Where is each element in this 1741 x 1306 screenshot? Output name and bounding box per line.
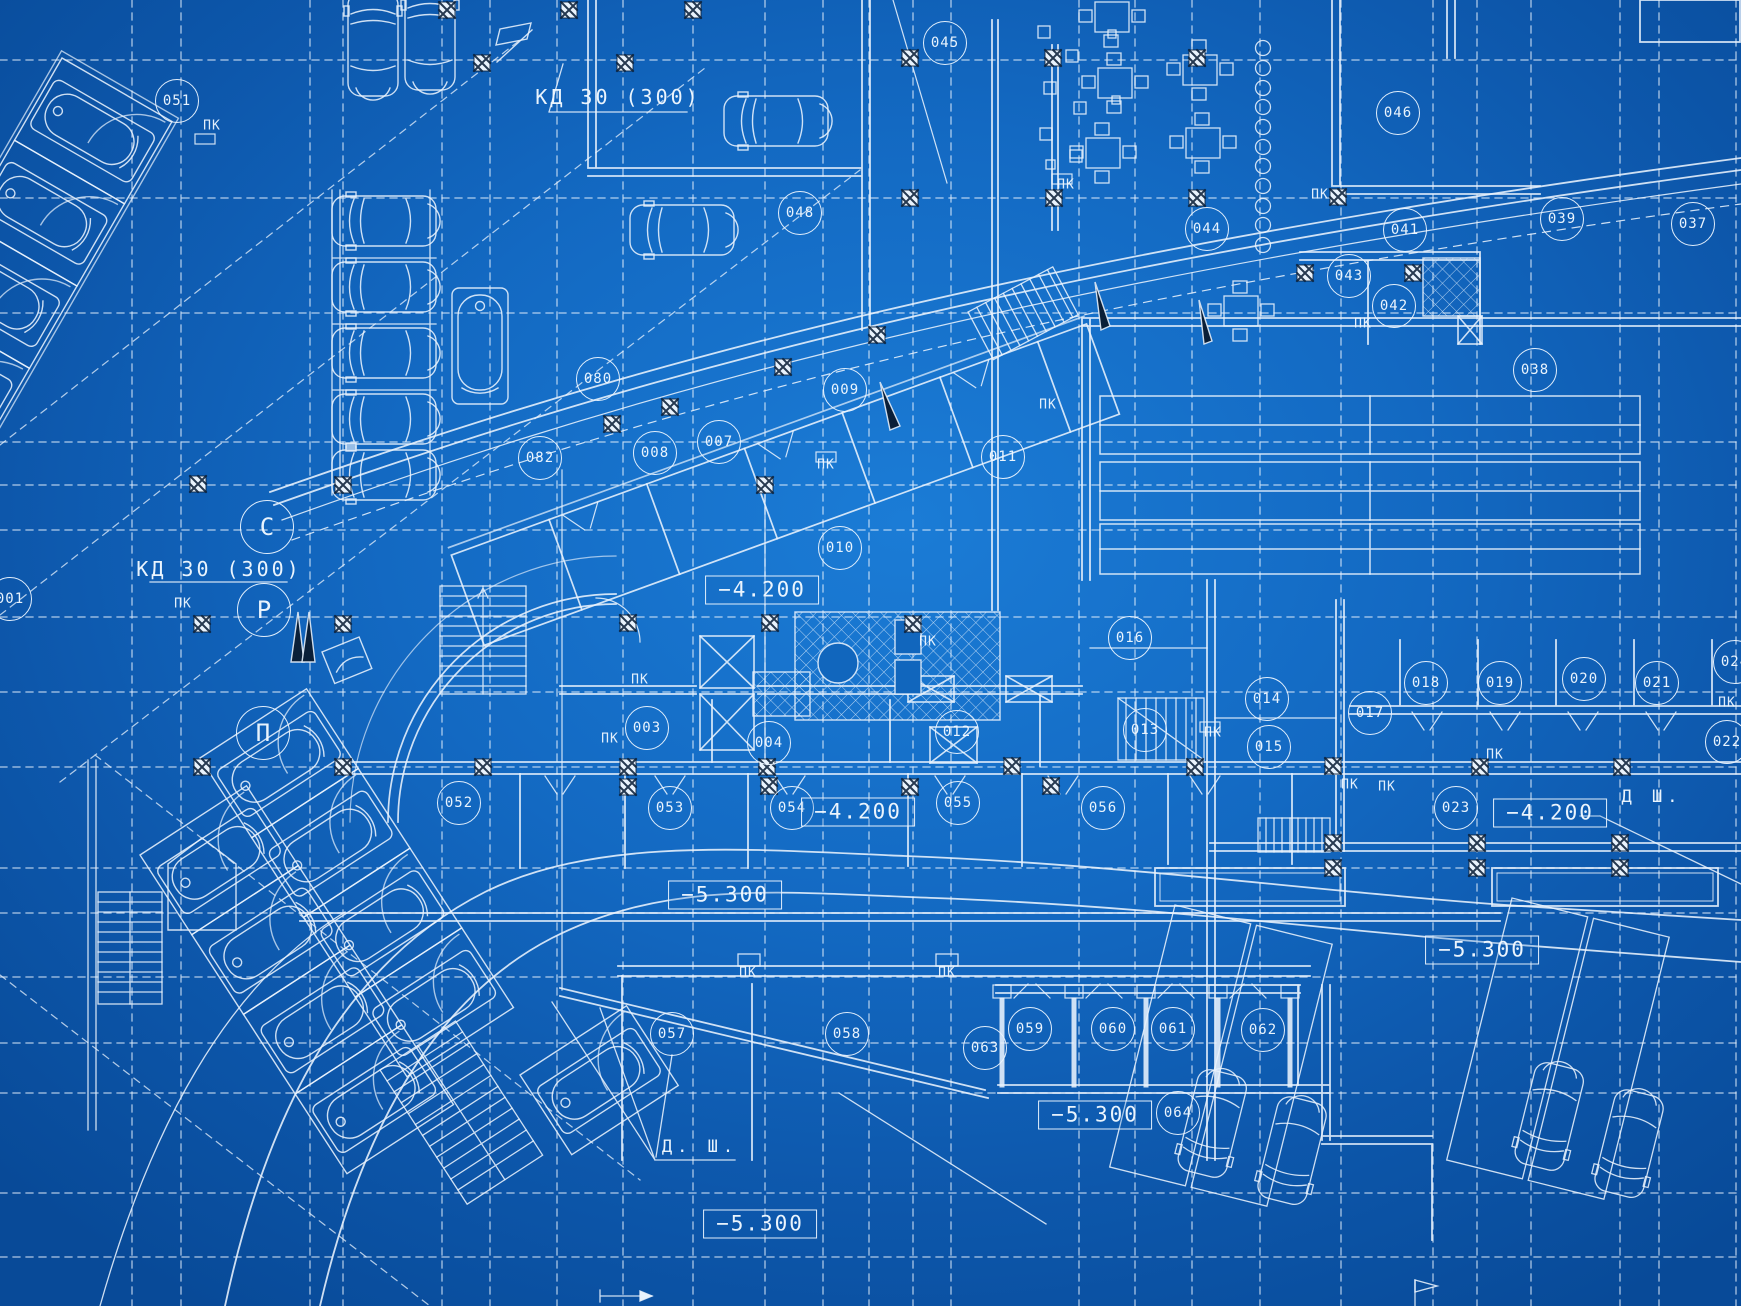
pk-marker-label: ПК	[1039, 398, 1057, 413]
room-number-bubble: 058	[825, 1012, 869, 1056]
room-number-bubble: 018	[1404, 661, 1448, 705]
stairs-far-left	[98, 892, 162, 1004]
room-number-bubble: 022	[1705, 720, 1741, 764]
room-number-bubble: 044	[1185, 207, 1229, 251]
elevation-level-mark: −5.300	[1425, 936, 1539, 965]
elevation-level-mark: −5.300	[703, 1210, 817, 1239]
column-markers	[190, 2, 1630, 876]
room-number-bubble: 052	[437, 781, 481, 825]
axis-letter-bubble: П	[236, 706, 290, 760]
parking-cars	[332, 0, 832, 504]
pk-marker-label: ПК	[174, 597, 192, 612]
room-number-bubble: 009	[823, 368, 867, 412]
blueprint-canvas: 0510450460480440410390370430420380800090…	[0, 0, 1741, 1306]
stairs-small-right	[1258, 818, 1330, 852]
parking-pad-left	[1155, 868, 1345, 906]
pk-marker-label: ПК	[631, 673, 649, 688]
pk-marker-label: ПК	[1204, 726, 1222, 741]
elevation-level-mark: −4.200	[801, 798, 915, 827]
room-number-bubble: 013	[1123, 708, 1167, 752]
room-number-bubble: 023	[1434, 786, 1478, 830]
parking-pad-right	[1492, 868, 1718, 906]
axis-letter-bubble: Р	[237, 583, 291, 637]
room-number-bubble: 004	[747, 721, 791, 765]
room-number-bubble: 064	[1156, 1091, 1200, 1135]
room-number-bubble: 055	[936, 781, 980, 825]
pk-marker-label: ПК	[739, 966, 757, 981]
pk-marker-label: ПК	[1486, 748, 1504, 763]
road-curves	[100, 850, 1741, 1306]
pk-marker-label: ПК	[1341, 778, 1359, 793]
dimension-mark	[600, 1290, 652, 1302]
pk-marker-label: ПК	[1311, 188, 1329, 203]
room-number-bubble: 007	[697, 420, 741, 464]
tub-band-top-left	[0, 51, 178, 535]
furniture-tables	[1038, 0, 1274, 341]
storage-racks	[1100, 396, 1640, 574]
door-leaf-filled	[1199, 300, 1212, 344]
room-number-bubble: 015	[1247, 725, 1291, 769]
pk-marker-label: ПК	[1354, 317, 1372, 332]
room-number-bubble: 014	[1245, 677, 1289, 721]
pk-marker-label: ПК	[1057, 178, 1075, 193]
pk-tab	[195, 134, 215, 144]
room-number-bubble: 053	[648, 786, 692, 830]
room-number-bubble: 051	[155, 79, 199, 123]
elevation-level-mark: −4.200	[1493, 799, 1607, 828]
room-number-bubble: 062	[1241, 1008, 1285, 1052]
room-number-bubble: 043	[1327, 254, 1371, 298]
room-number-bubble: 080	[576, 357, 620, 401]
stairs-lower-left	[380, 1021, 543, 1204]
room-number-bubble: 057	[650, 1012, 694, 1056]
room-number-bubble: 045	[923, 21, 967, 65]
tilted-stalls-left	[1110, 905, 1371, 1216]
room-number-bubble: 046	[1376, 91, 1420, 135]
room-number-bubble: 016	[1108, 616, 1152, 660]
elevation-level-mark: −5.300	[668, 881, 782, 910]
room-number-bubble: 011	[981, 435, 1025, 479]
room-number-bubble: 048	[778, 191, 822, 235]
room-number-bubble: 082	[518, 436, 562, 480]
north-flag-bottom	[1415, 1280, 1437, 1306]
tub-vertical	[452, 288, 508, 404]
room-number-bubble: 056	[1081, 786, 1125, 830]
duct-size-label: КД 30 (300)	[535, 85, 700, 109]
shaft-label: Д. Ш.	[662, 1137, 738, 1157]
room-number-bubble: 038	[1513, 348, 1557, 392]
pk-marker-label: ПК	[203, 119, 221, 134]
pk-marker-label: ПК	[1378, 780, 1396, 795]
room-number-bubble: 042	[1372, 284, 1416, 328]
pk-marker-label: ПК	[938, 966, 956, 981]
axis-letter-bubble: С	[240, 500, 294, 554]
flag-symbol	[496, 23, 532, 62]
room-number-bubble: 039	[1540, 197, 1584, 241]
room-number-bubble: 003	[625, 706, 669, 750]
blueprint-linework	[0, 0, 1741, 1306]
pk-marker-label: ПК	[1718, 696, 1736, 711]
room-number-bubble: 017	[1348, 691, 1392, 735]
north-triangle	[302, 612, 315, 662]
room-number-bubble: 010	[818, 526, 862, 570]
room-number-bubble: 060	[1091, 1007, 1135, 1051]
room-number-bubble: 037	[1671, 202, 1715, 246]
room-number-bubble: 061	[1151, 1007, 1195, 1051]
room-number-bubble: 012	[935, 710, 979, 754]
elevation-level-mark: −5.300	[1038, 1101, 1152, 1130]
shaft-label: Д Ш.	[1622, 787, 1683, 807]
room-number-bubble: 059	[1008, 1007, 1052, 1051]
duct-size-label: КД 30 (300)	[136, 557, 301, 581]
pk-marker-label: ПК	[919, 635, 937, 650]
room-number-bubble: 021	[1635, 661, 1679, 705]
stairs-upper	[968, 267, 1078, 360]
circle-column	[1256, 41, 1271, 253]
room-number-bubble: 019	[1478, 661, 1522, 705]
pk-marker-label: ПК	[601, 732, 619, 747]
tilted-marker	[322, 637, 372, 684]
pk-marker-label: ПК	[817, 458, 835, 473]
room-number-bubble: 063	[963, 1026, 1007, 1070]
room-number-bubble: 008	[633, 431, 677, 475]
door-leaf-filled	[880, 382, 900, 430]
elevation-level-mark: −4.200	[705, 576, 819, 605]
north-triangle	[291, 612, 304, 662]
room-number-bubble: 020	[1562, 657, 1606, 701]
room-number-bubble: 041	[1383, 208, 1427, 252]
